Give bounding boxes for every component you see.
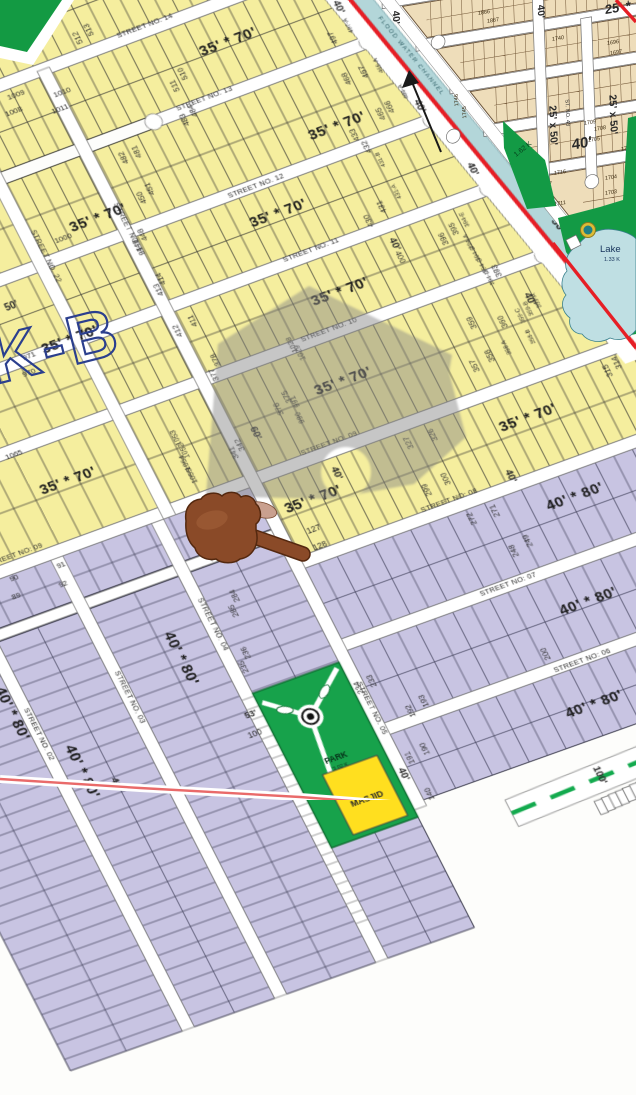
svg-text:Lake: Lake: [600, 244, 621, 255]
svg-text:25' x 50': 25' x 50': [606, 94, 618, 136]
svg-text:1.33 K: 1.33 K: [604, 257, 620, 263]
svg-text:1746: 1746: [454, 94, 460, 107]
svg-text:25' x 50': 25' x 50': [546, 105, 558, 147]
svg-text:K-B: K-B: [0, 293, 129, 399]
svg-text:ST. NO. 43: ST. NO. 43: [564, 99, 571, 127]
svg-text:1745: 1745: [462, 106, 468, 119]
svg-text:40': 40': [390, 10, 401, 25]
svg-text:40': 40': [535, 4, 546, 19]
